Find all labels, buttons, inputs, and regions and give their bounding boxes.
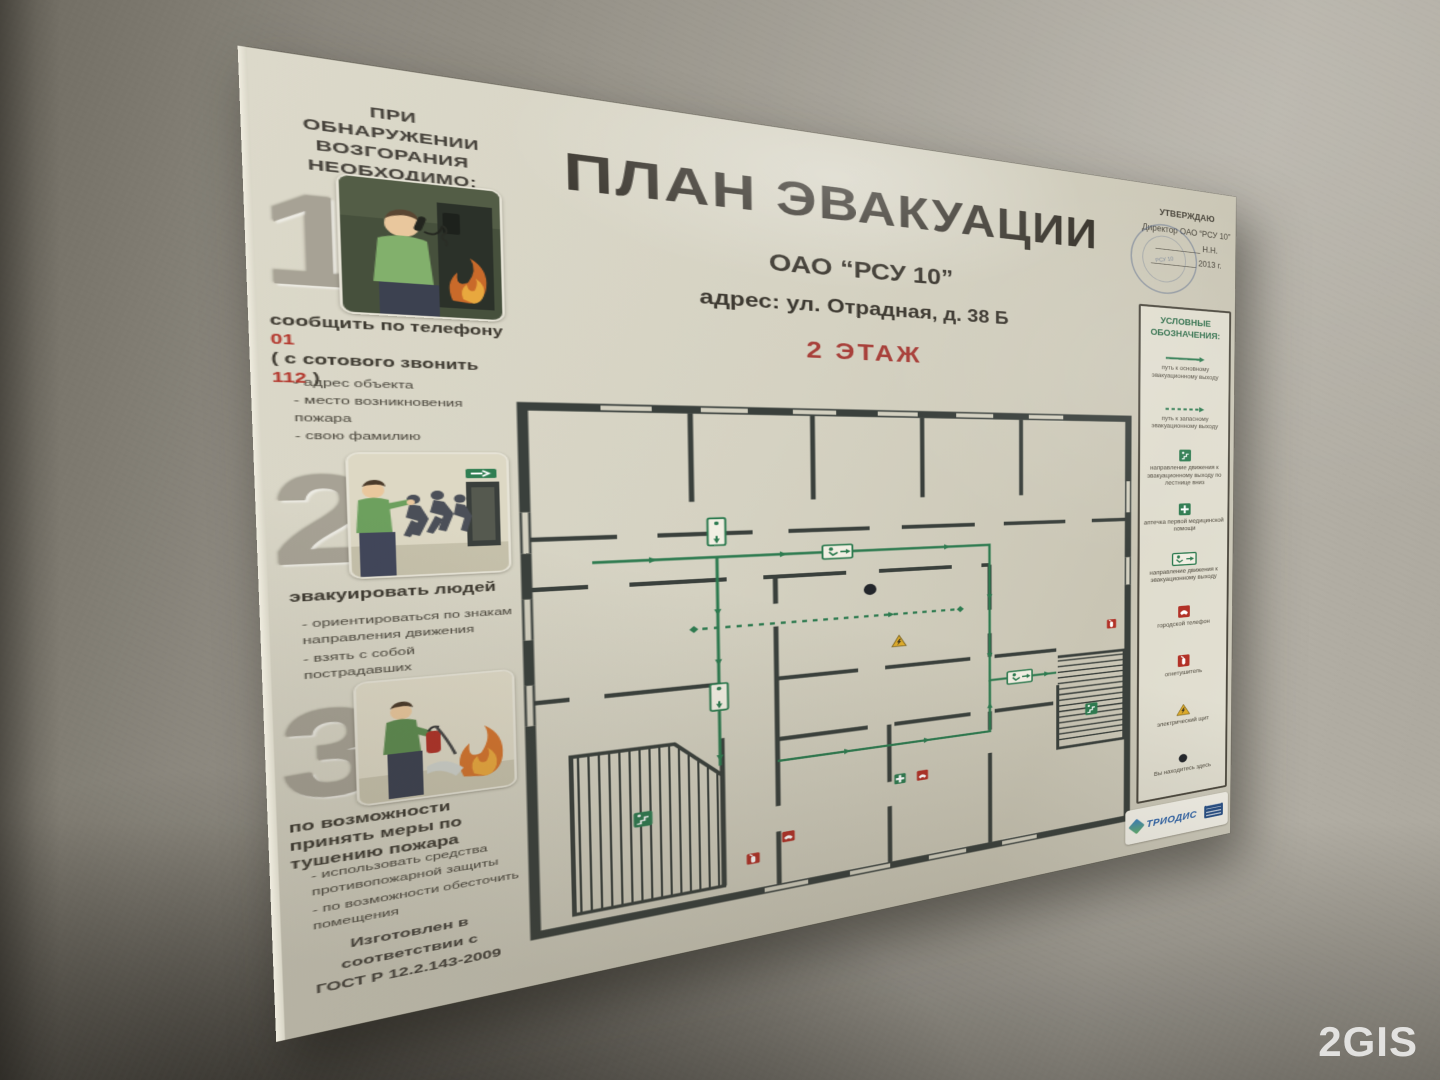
manufacturer-logo-icon	[1128, 818, 1144, 834]
legend-item-exit-direction: направление движения к эвакуационному вы…	[1143, 540, 1224, 594]
you-are-here-mark	[864, 584, 877, 596]
illustration-evacuate-people	[345, 452, 512, 579]
staircase-right	[1056, 650, 1125, 749]
exit-downstairs-sign-icon	[1179, 449, 1192, 462]
windows	[518, 403, 1131, 940]
first-aid-sign-icon	[1178, 503, 1191, 516]
bullet: - свою фамилию	[295, 428, 511, 446]
secondary-route-dashed-line-icon	[1164, 405, 1206, 414]
photo-of-evacuation-plan: ПРИ ОБНАРУЖЕНИИ ВОЗГОРАНИЯ НЕОБХОДИМО: 1	[0, 0, 1440, 1080]
evacuation-plan-board: ПРИ ОБНАРУЖЕНИИ ВОЗГОРАНИЯ НЕОБХОДИМО: 1	[247, 47, 1236, 1040]
fire-extinguisher-sign-icon	[1177, 654, 1190, 668]
legend-item-secondary-route: путь к запасному эвакуационному выходу	[1144, 391, 1226, 443]
interior-walls	[527, 410, 1125, 931]
floor-label: 2 ЭТАЖ	[581, 325, 1089, 376]
legend-box: УСЛОВНЫЕ ОБОЗНАЧЕНИЯ: путь к основному э…	[1136, 304, 1231, 804]
illustration-extinguish-fire	[353, 669, 517, 808]
main-evacuation-route	[592, 542, 1056, 786]
board-shadow-wrap: ПРИ ОБНАРУЖЕНИИ ВОЗГОРАНИЯ НЕОБХОДИМО: 1	[0, 0, 1440, 1080]
window-gaps	[522, 406, 1128, 935]
legend-item-exit-downstairs: направление движения к эвакуационному вы…	[1143, 443, 1225, 494]
legend-item-first-aid: аптечка первой медицинской помощи	[1143, 492, 1224, 544]
watermark-2gis: 2GIS	[1318, 1018, 1418, 1066]
stamp-inner-ring: РСУ 10	[1138, 234, 1190, 285]
outer-walls	[522, 406, 1128, 935]
electrical-panel-sign-icon	[1175, 702, 1191, 717]
secondary-evacuation-route	[702, 609, 955, 628]
legend-item-city-phone: городской телефон	[1143, 589, 1224, 645]
step-1-bullets: - адрес объекта - место возникновения по…	[293, 374, 511, 446]
bullet: - место возникновения пожара	[293, 393, 510, 430]
legend-item-main-route: путь к основному эвакуационному выходу	[1144, 340, 1226, 395]
staircase-left	[571, 736, 724, 916]
exit-direction-sign-icon	[1172, 552, 1197, 566]
phone-number-01: 01	[270, 331, 295, 348]
main-route-line-icon	[1164, 354, 1206, 364]
manufacturer-info-block	[1204, 802, 1223, 818]
you-are-here-mark-icon	[1177, 751, 1189, 764]
illustration-call-fire-department	[335, 172, 505, 322]
floor-plan	[516, 401, 1132, 941]
city-phone-sign-icon	[1177, 605, 1190, 619]
legend-title: УСЛОВНЫЕ ОБОЗНАЧЕНИЯ:	[1150, 314, 1220, 342]
manufacturer-name: ТРИОДИС	[1146, 808, 1197, 829]
